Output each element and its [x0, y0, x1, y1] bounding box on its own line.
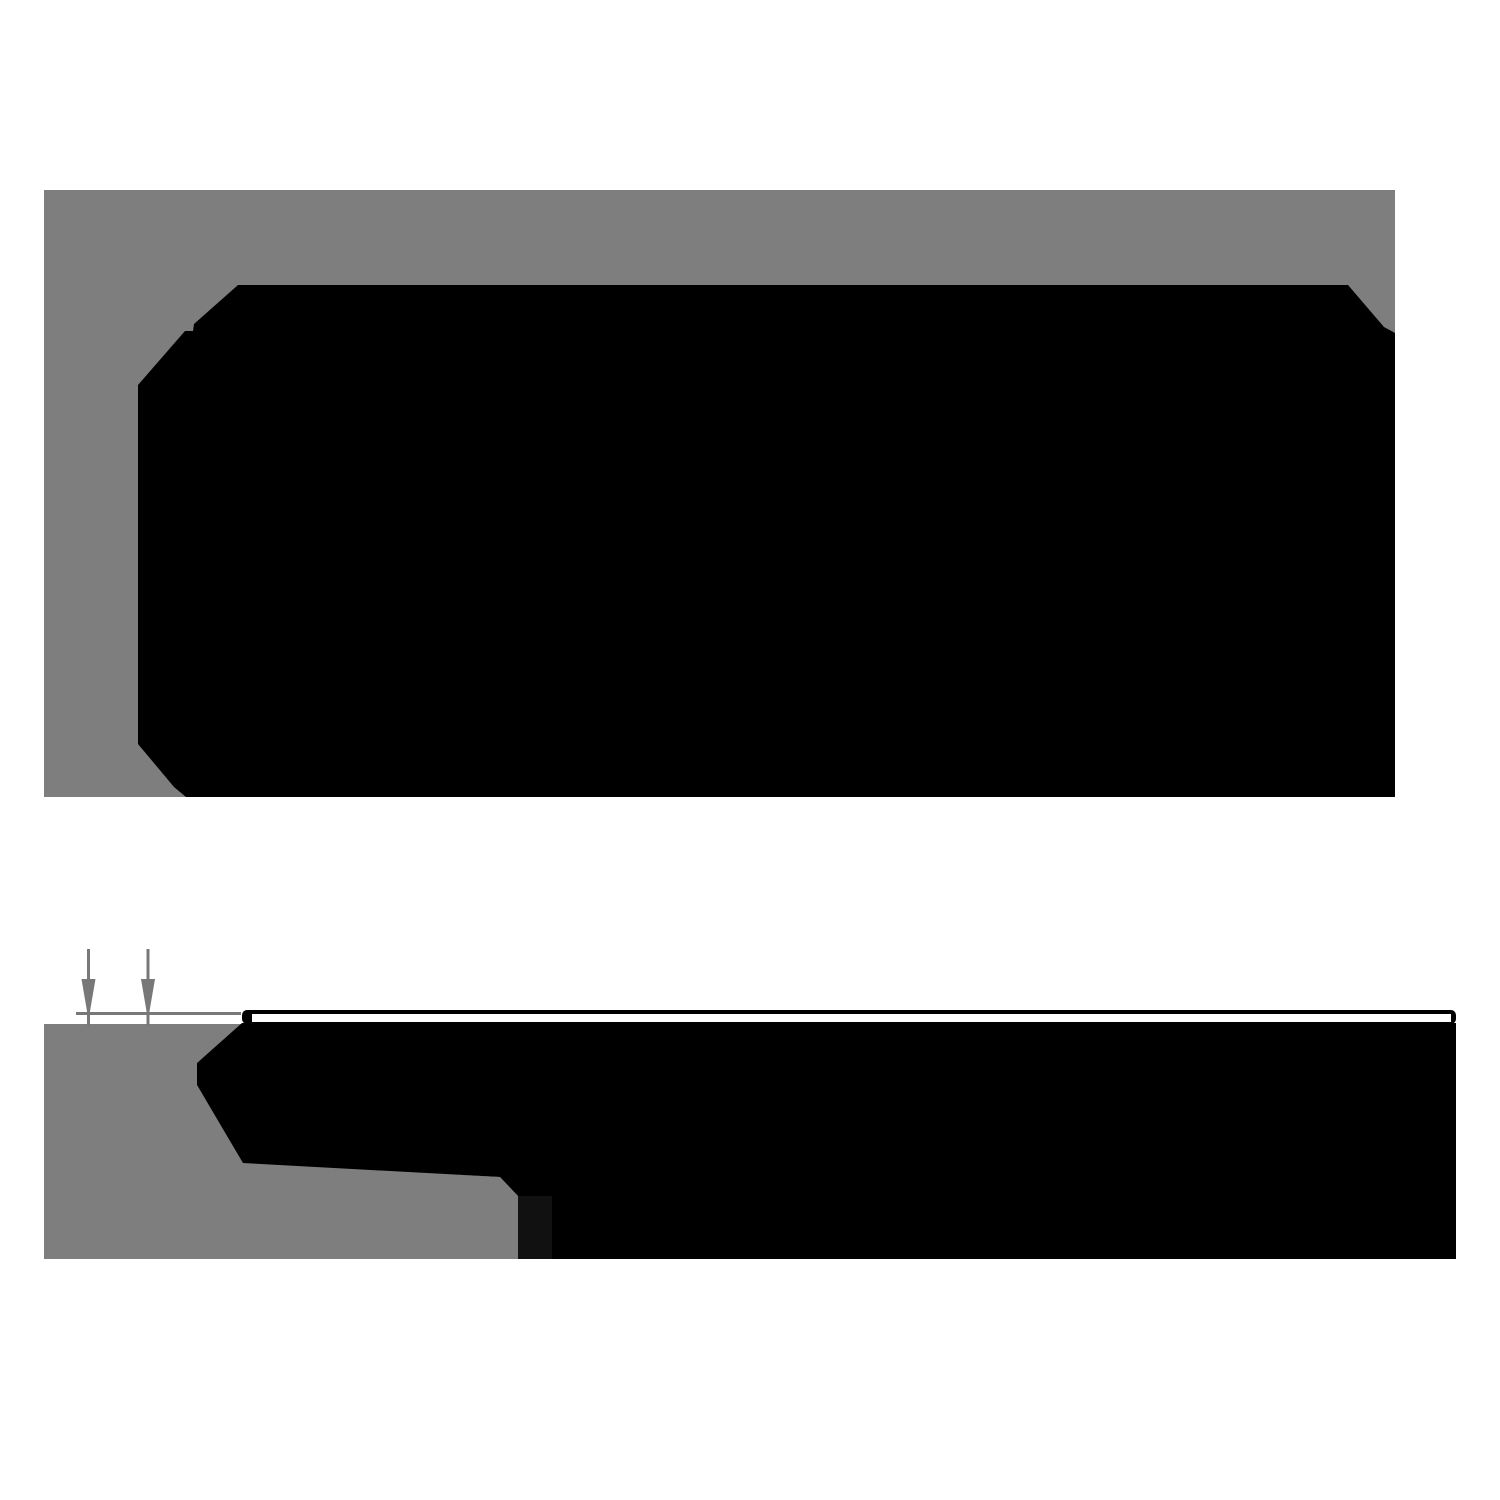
- tile-top-surface: [138, 285, 1395, 797]
- profile-shadow-strip: [518, 1196, 552, 1259]
- dimension-extension-line: [76, 1012, 241, 1015]
- tile-top-view: [44, 190, 1395, 797]
- top-layer-face: [252, 1014, 1451, 1022]
- illustration-stage: [0, 0, 1500, 1500]
- technical-illustration: [0, 0, 1500, 1500]
